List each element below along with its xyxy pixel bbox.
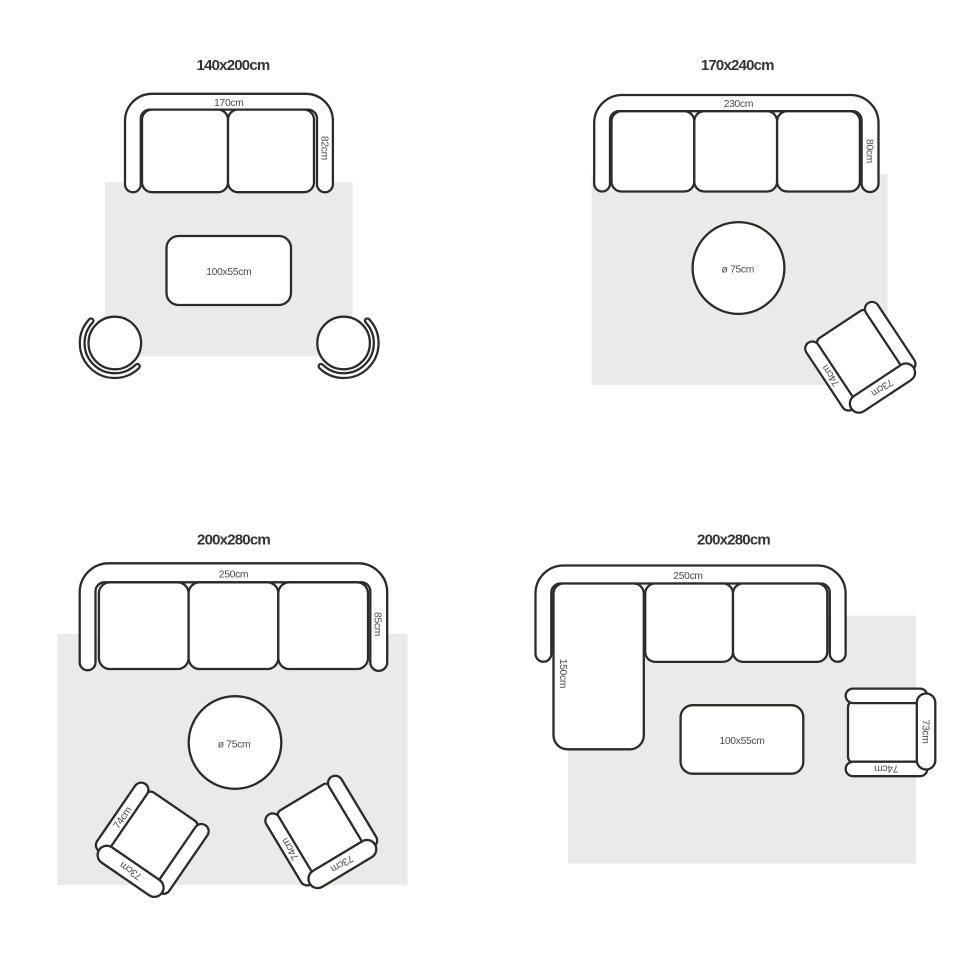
- svg-text:250cm: 250cm: [673, 571, 702, 582]
- svg-text:250cm: 250cm: [219, 569, 248, 580]
- svg-text:170cm: 170cm: [214, 98, 243, 109]
- svg-text:100x55cm: 100x55cm: [719, 736, 764, 747]
- svg-text:140x200cm: 140x200cm: [197, 57, 270, 74]
- svg-text:230cm: 230cm: [724, 99, 753, 110]
- svg-text:100x55cm: 100x55cm: [206, 267, 251, 278]
- svg-text:200x280cm: 200x280cm: [197, 532, 270, 549]
- svg-text:80cm: 80cm: [863, 139, 874, 163]
- svg-text:ø 75cm: ø 75cm: [722, 264, 755, 275]
- svg-text:200x280cm: 200x280cm: [697, 532, 770, 549]
- svg-text:82cm: 82cm: [318, 136, 329, 160]
- svg-text:85cm: 85cm: [372, 612, 383, 636]
- svg-text:ø 75cm: ø 75cm: [218, 739, 251, 750]
- svg-text:170x240cm: 170x240cm: [701, 57, 774, 74]
- svg-text:150cm: 150cm: [557, 659, 568, 688]
